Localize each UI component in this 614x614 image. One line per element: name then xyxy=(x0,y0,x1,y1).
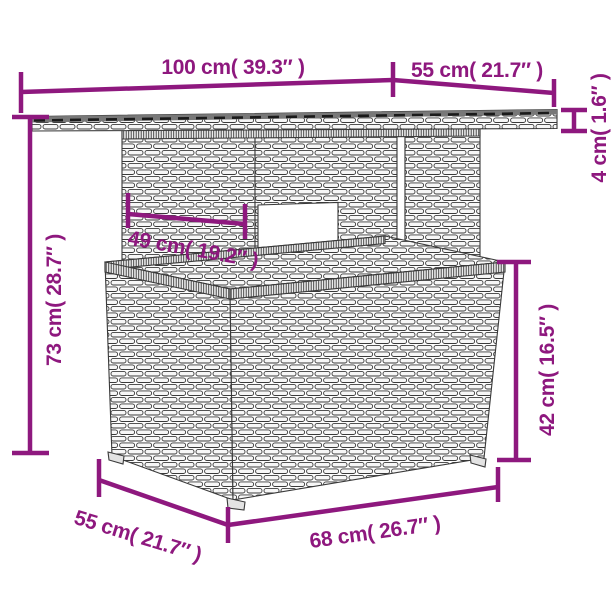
label-stool-width: 68 cm( 26.7″ ) xyxy=(308,512,442,553)
dimension-diagram: 100 cm( 39.3″ ) 55 cm( 21.7″ ) 4 cm( 1.6… xyxy=(0,0,614,614)
diagram-canvas: 100 cm( 39.3″ ) 55 cm( 21.7″ ) 4 cm( 1.6… xyxy=(0,0,614,614)
stool-left-face xyxy=(105,262,233,500)
dim-line-100cm xyxy=(21,80,393,92)
label-tabletop-width: 100 cm( 39.3″ ) xyxy=(161,56,304,79)
label-tabletop-thickness: 4 cm( 1.6″ ) xyxy=(588,73,611,182)
stool-right-face xyxy=(230,262,505,500)
table-apron-opening xyxy=(258,203,338,248)
label-stool-height: 42 cm( 16.5″ ) xyxy=(536,304,559,436)
label-stool-depth: 55 cm( 21.7″ ) xyxy=(71,506,204,567)
label-table-height: 73 cm( 28.7″ ) xyxy=(43,234,66,366)
furniture-sketch xyxy=(32,110,557,511)
label-tabletop-side: 55 cm( 21.7″ ) xyxy=(411,59,543,82)
